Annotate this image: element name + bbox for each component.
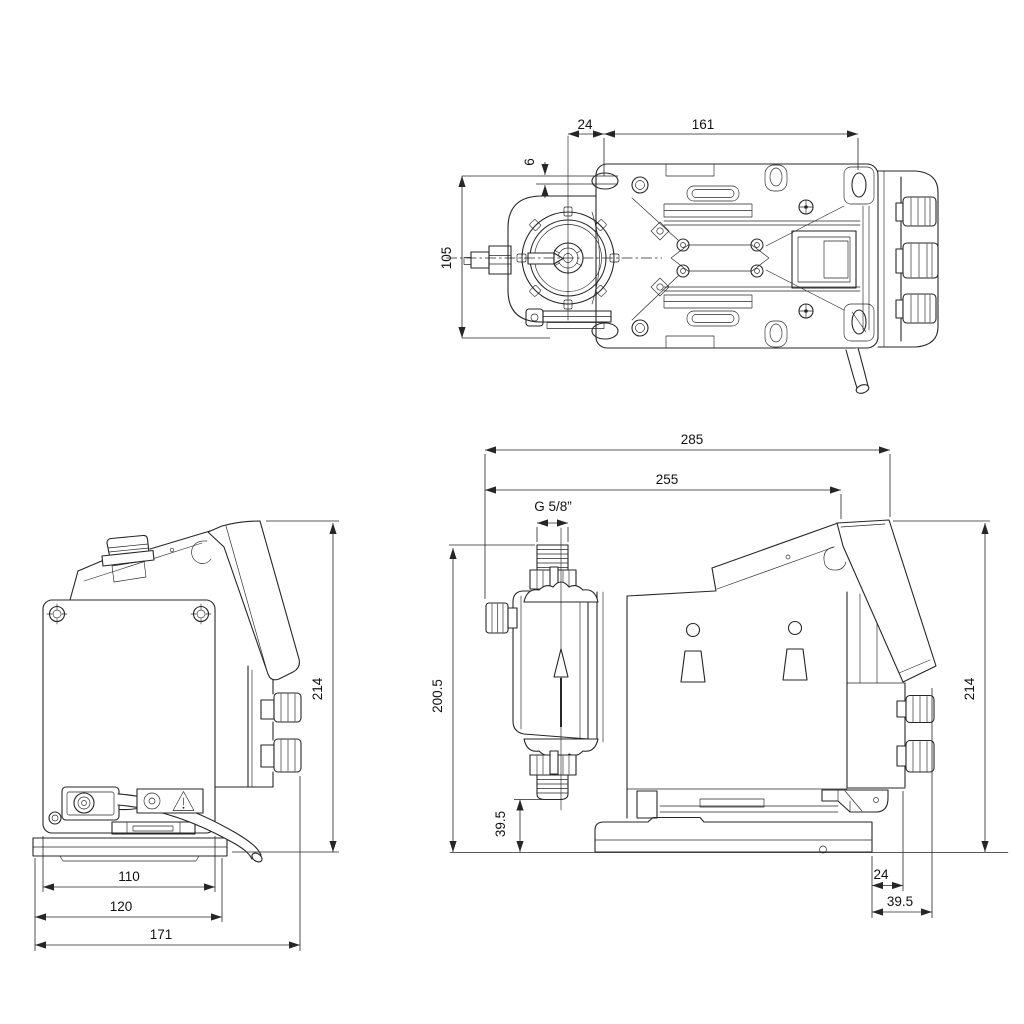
body-side bbox=[627, 591, 905, 818]
dosing-head-side bbox=[486, 528, 603, 810]
back-view: 214 110 120 171 bbox=[33, 521, 339, 951]
dim-label-105: 105 bbox=[439, 247, 454, 270]
control-module-back bbox=[215, 666, 273, 787]
vent-valve-knob bbox=[486, 603, 517, 633]
top-view: 24 161 6 105 bbox=[439, 117, 938, 395]
dim-label-120: 120 bbox=[110, 899, 133, 914]
dim-label-39-5-right: 39.5 bbox=[887, 894, 913, 909]
dim-label-24-top: 24 bbox=[577, 117, 593, 132]
dim-label-200-5: 200.5 bbox=[430, 679, 445, 713]
dim-label-6: 6 bbox=[522, 158, 537, 166]
dim-label-110: 110 bbox=[118, 869, 140, 884]
dim-side-214: 214 bbox=[893, 521, 990, 852]
bottom-connector-block bbox=[822, 790, 888, 812]
dim-side-39-5-left: 39.5 bbox=[493, 800, 542, 853]
mounting-plate bbox=[592, 164, 878, 348]
cable-gland-knob bbox=[896, 197, 936, 226]
dim-label-214-side: 214 bbox=[962, 677, 977, 700]
dim-side-thread: G 5/8” bbox=[534, 499, 572, 542]
warning-label bbox=[137, 789, 203, 813]
mounting-keyhole bbox=[687, 624, 700, 637]
dim-top-161: 161 bbox=[604, 117, 858, 170]
dim-label-214-back: 214 bbox=[310, 677, 325, 700]
display-arm-side bbox=[712, 520, 936, 682]
mounting-keyhole bbox=[789, 622, 802, 635]
dimensional-drawing: 24 161 6 105 bbox=[0, 0, 1024, 1024]
bottom-clamp bbox=[526, 309, 611, 329]
dim-label-255: 255 bbox=[656, 472, 679, 487]
dim-label-161: 161 bbox=[692, 117, 715, 132]
vent-connector bbox=[464, 246, 511, 274]
dim-label-24-side: 24 bbox=[873, 867, 889, 882]
cable-gland-knob bbox=[897, 741, 934, 773]
dim-label-thread: G 5/8” bbox=[534, 499, 572, 514]
dim-label-39-5-left: 39.5 bbox=[493, 811, 508, 837]
housing-back bbox=[70, 531, 210, 600]
dim-label-285: 285 bbox=[681, 432, 704, 447]
power-cable-top bbox=[846, 348, 870, 395]
cable-gland-knob bbox=[261, 693, 301, 722]
cable-gland-knob bbox=[896, 294, 936, 323]
cable-gland-knob bbox=[896, 243, 938, 278]
side-view: 285 255 G 5/8” 200.5 39.5 214 bbox=[430, 432, 1008, 918]
dim-label-171: 171 bbox=[150, 927, 173, 942]
cable-gland-knob bbox=[897, 696, 934, 723]
dim-top-6: 6 bbox=[462, 158, 618, 198]
control-box-top bbox=[878, 171, 938, 347]
cable-gland-knob bbox=[261, 739, 301, 772]
